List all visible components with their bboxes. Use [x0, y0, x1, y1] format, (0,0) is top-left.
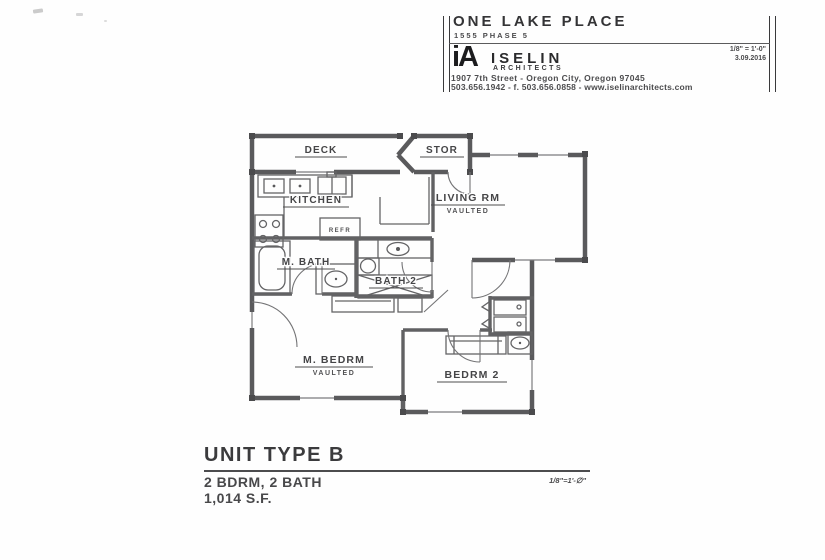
room-note-living-vaulted: VAULTED: [447, 208, 490, 215]
kitchen-range: [255, 215, 283, 247]
bath2-sink: [358, 258, 379, 275]
unit-scale-note: 1/8"=1'-∅": [549, 476, 586, 485]
unit-area: 1,014 S.F.: [204, 490, 590, 506]
unit-bed-bath: 2 BDRM, 2 BATH: [204, 474, 590, 490]
room-label-m-bath: M. BATH: [282, 257, 331, 268]
refrigerator-label: REFR: [329, 228, 351, 234]
room-note-m-bedrm-vaulted: VAULTED: [313, 370, 356, 377]
bath2-toilet: [358, 240, 432, 258]
room-label-kitchen: KITCHEN: [290, 195, 342, 206]
room-label-m-bedrm: M. BEDRM: [303, 354, 365, 366]
unit-label-block: UNIT TYPE B 2 BDRM, 2 BATH 1,014 S.F. 1/…: [204, 444, 590, 506]
scanned-floor-plan-sheet: ONE LAKE PLACE 1555 PHASE 5 iA ISELIN AR…: [0, 0, 825, 560]
room-label-deck: DECK: [305, 145, 338, 156]
room-label-bath2: BATH 2: [375, 276, 417, 287]
exterior-walls: [252, 134, 587, 414]
bedrm2-closet: [446, 336, 506, 354]
room-label-stor: STOR: [426, 145, 458, 156]
unit-type-title: UNIT TYPE B: [204, 444, 590, 467]
room-label-living-rm: LIVING RM: [436, 192, 500, 204]
room-label-bedrm2: BEDRM 2: [445, 369, 500, 381]
unit-specs: 2 BDRM, 2 BATH 1,014 S.F.: [204, 474, 590, 506]
master-bath-tub: [254, 241, 290, 295]
